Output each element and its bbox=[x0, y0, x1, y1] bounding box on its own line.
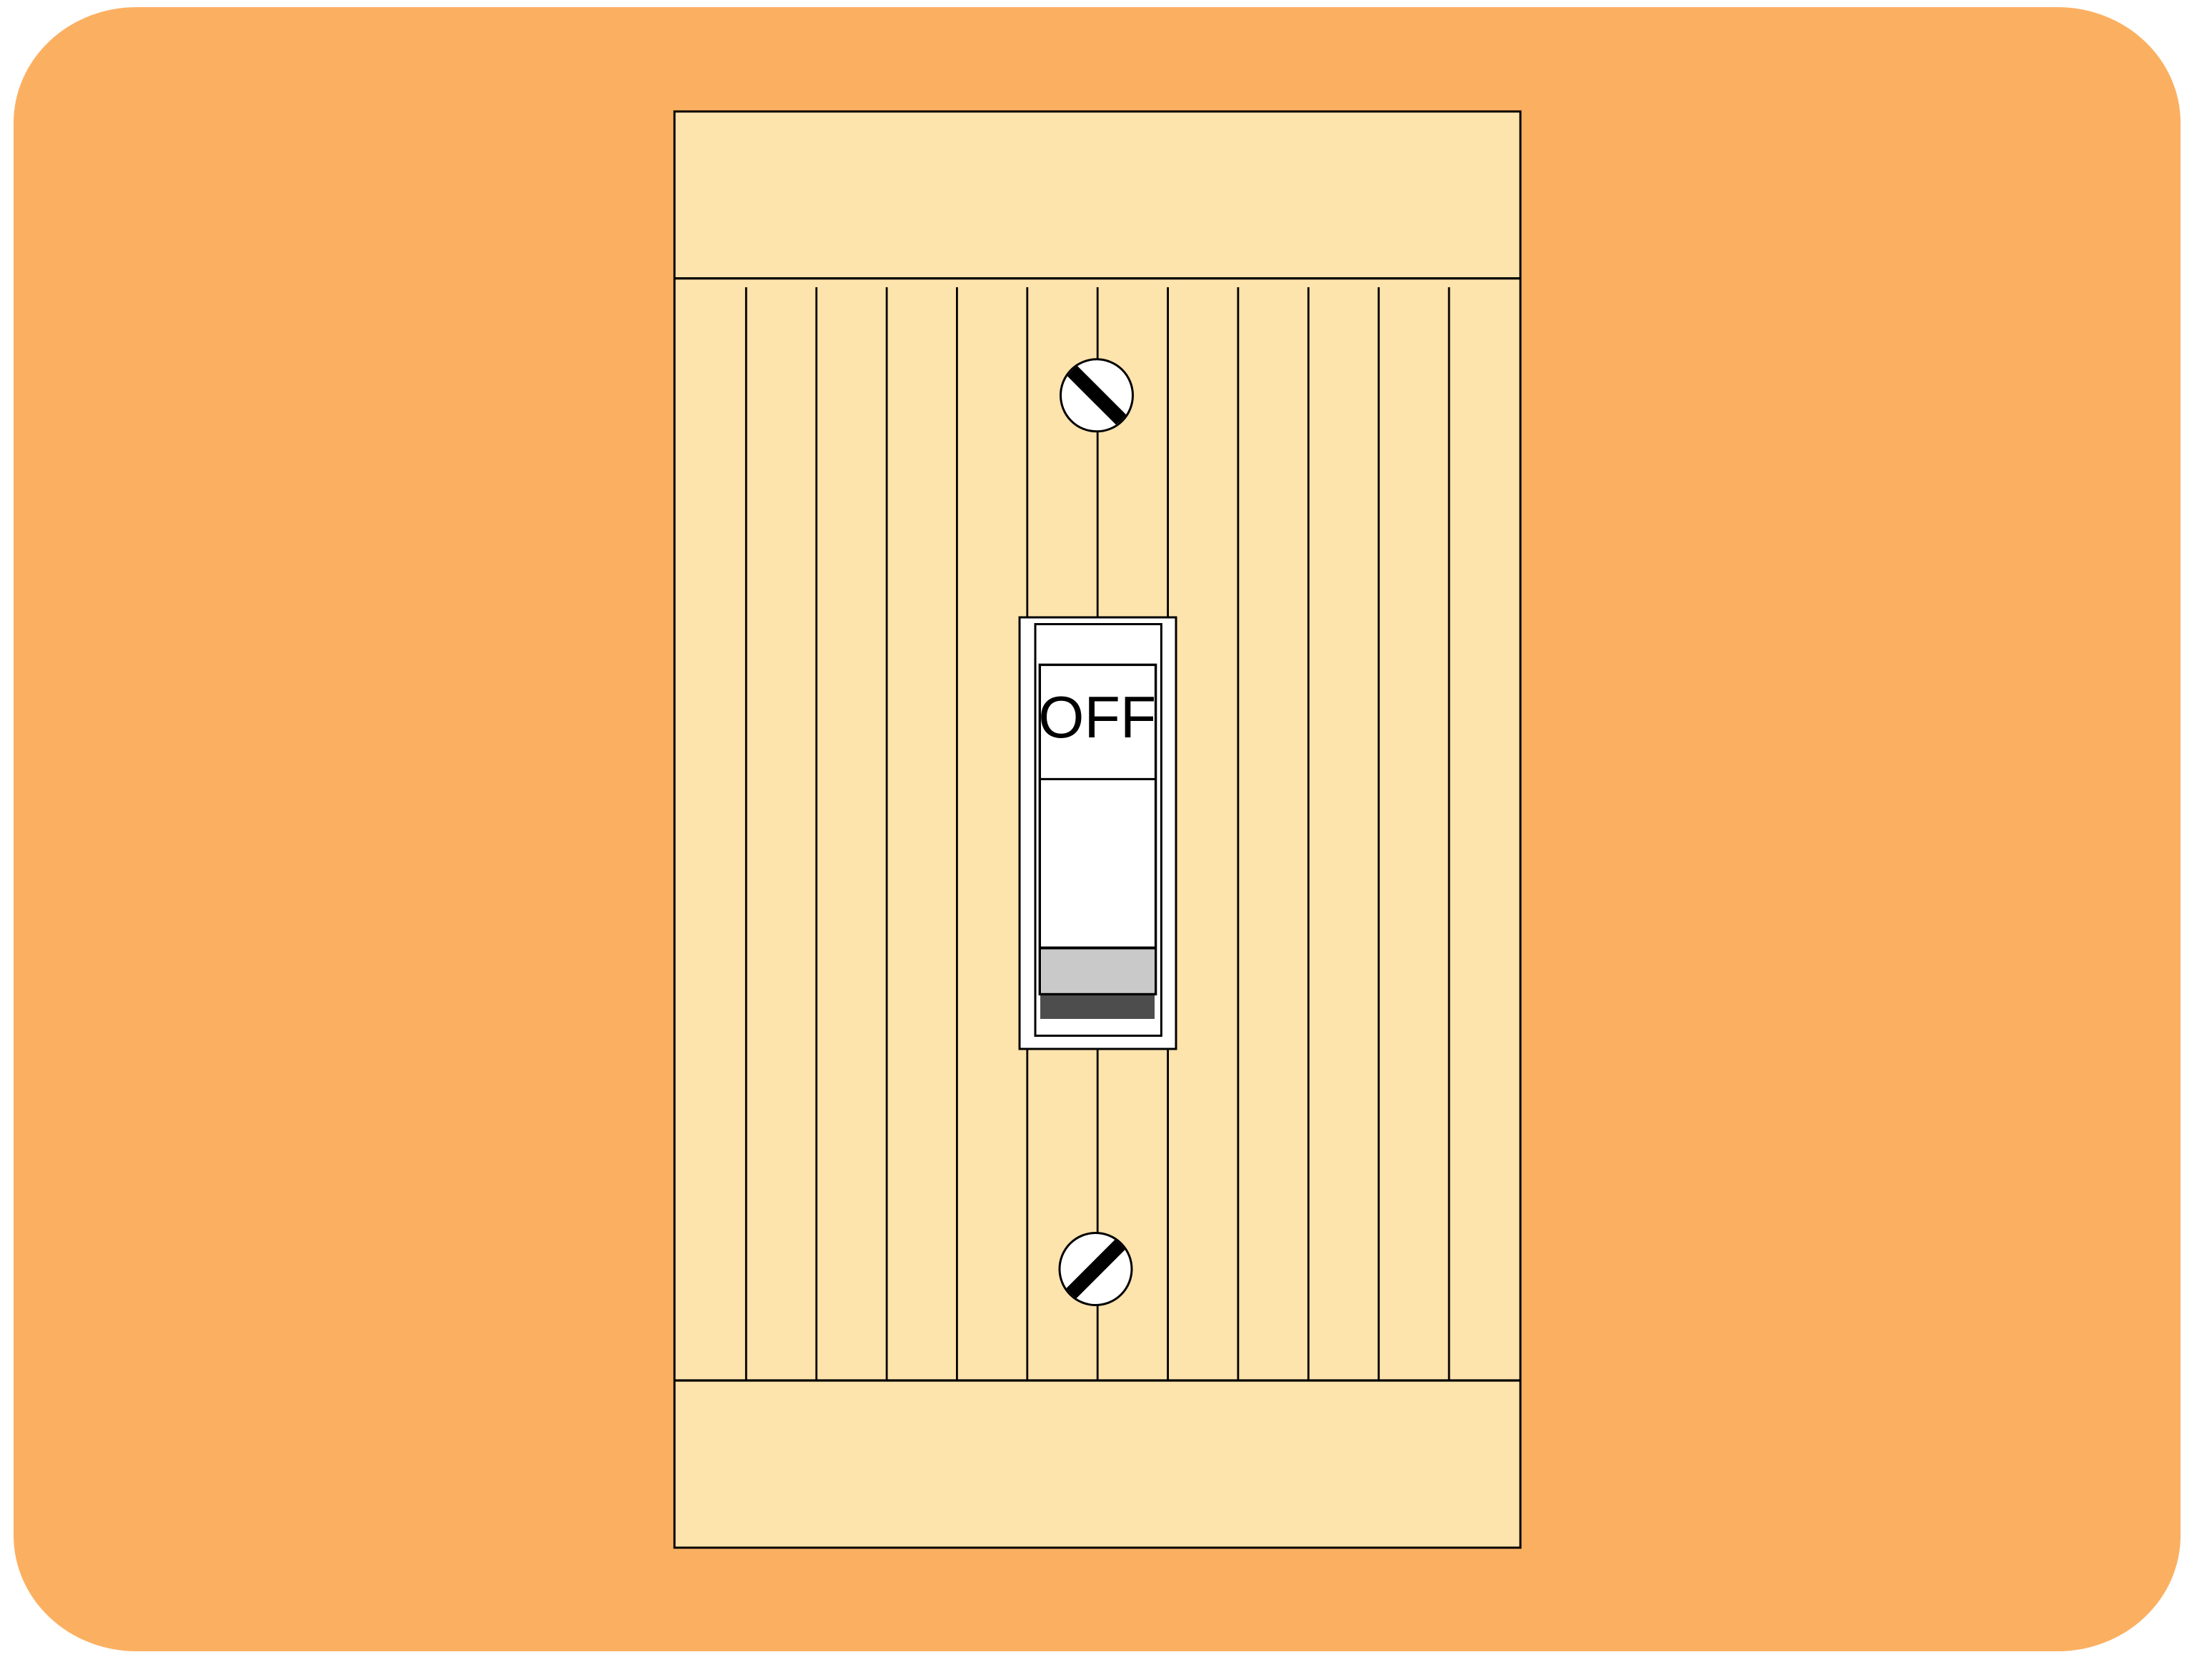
svg-text:OFF: OFF bbox=[1038, 685, 1156, 750]
